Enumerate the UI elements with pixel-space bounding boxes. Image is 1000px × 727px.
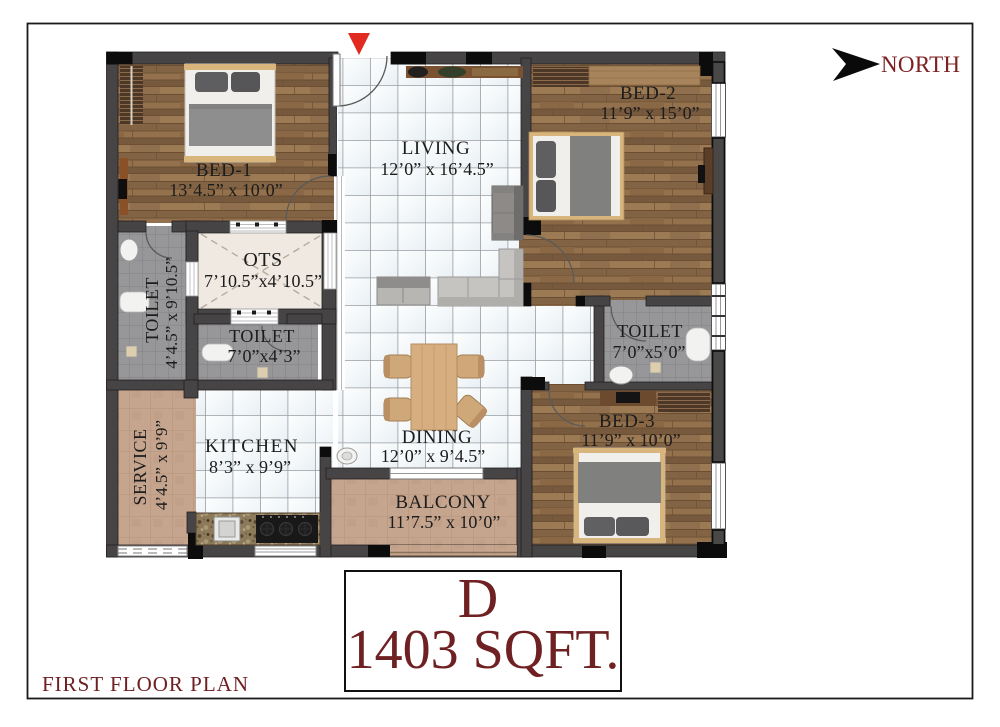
svg-text:13’4.5” x 10’0”: 13’4.5” x 10’0” — [169, 180, 282, 200]
svg-text:12’0” x 9’4.5”: 12’0” x 9’4.5” — [381, 446, 485, 466]
svg-text:DINING: DINING — [402, 427, 473, 448]
svg-text:7’0”x5’0”: 7’0”x5’0” — [613, 342, 686, 362]
svg-text:4’4.5” x 9’10.5”: 4’4.5” x 9’10.5” — [162, 257, 181, 368]
svg-text:7’0”x4’3”: 7’0”x4’3” — [228, 346, 301, 366]
svg-text:KITCHEN: KITCHEN — [205, 436, 299, 457]
svg-text:11’7.5” x 10’0”: 11’7.5” x 10’0” — [388, 512, 501, 532]
svg-text:TOILET: TOILET — [229, 326, 295, 346]
svg-text:7’10.5”x4’10.5”: 7’10.5”x4’10.5” — [204, 271, 322, 291]
svg-text:LIVING: LIVING — [402, 138, 470, 159]
svg-text:OTS: OTS — [243, 249, 282, 271]
svg-text:12’0” x 16’4.5”: 12’0” x 16’4.5” — [380, 159, 493, 179]
svg-text:1403 SQFT.: 1403 SQFT. — [347, 619, 620, 681]
svg-text:BED-2: BED-2 — [620, 83, 676, 104]
svg-text:BALCONY: BALCONY — [395, 492, 490, 513]
svg-text:TOILET: TOILET — [142, 277, 162, 343]
svg-text:8’3” x 9’9”: 8’3” x 9’9” — [209, 457, 291, 477]
svg-text:FIRST FLOOR PLAN: FIRST FLOOR PLAN — [42, 672, 249, 696]
svg-text:4’4.5” x 9’9”: 4’4.5” x 9’9” — [152, 420, 171, 510]
svg-text:11’9” x 15’0”: 11’9” x 15’0” — [600, 103, 699, 123]
svg-text:11’9” x 10’0”: 11’9” x 10’0” — [581, 430, 680, 450]
svg-text:SERVICE: SERVICE — [130, 428, 150, 505]
svg-text:BED-1: BED-1 — [196, 160, 252, 181]
svg-text:NORTH: NORTH — [881, 52, 960, 77]
svg-text:TOILET: TOILET — [617, 321, 683, 341]
svg-text:BED-3: BED-3 — [599, 411, 655, 432]
